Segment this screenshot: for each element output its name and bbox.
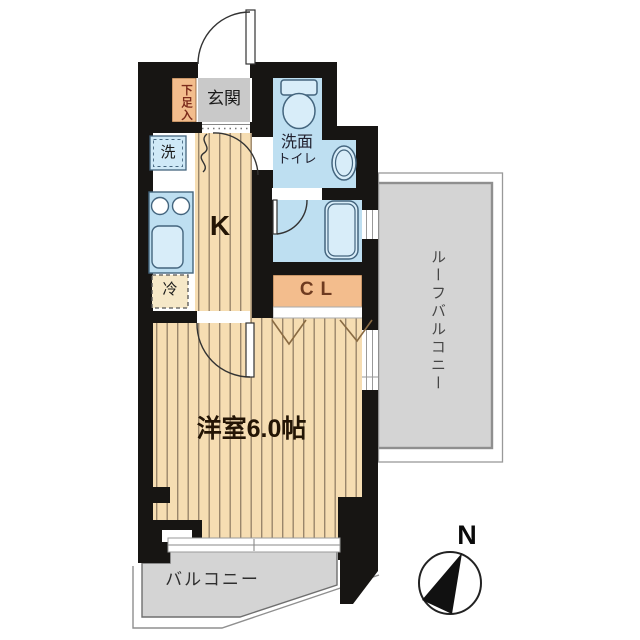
shoe-cabinet-label: 下足入 (173, 80, 192, 126)
washroom-label-line2: トイレ (268, 152, 326, 166)
floor-plan-drawing (0, 0, 640, 640)
balcony-label: バルコニー (160, 571, 265, 590)
closet-label: CL (273, 280, 362, 301)
bathtub-icon (325, 201, 358, 259)
floor-plan: 玄関 下足入 洗 K 冷 洗面 トイレ CL 洋室6.0帖 バルコニー ルーフバ… (0, 0, 640, 640)
western-room-side-window (362, 330, 378, 390)
refrigerator-label: 冷 (152, 282, 188, 299)
sink-icon (152, 226, 183, 268)
balcony-sliding-window (168, 538, 340, 552)
washroom-toilet-label: 洗面 トイレ (268, 134, 326, 166)
kitchen-counter-icon (149, 192, 193, 273)
entrance-door (198, 10, 255, 64)
toilet-icon (281, 80, 317, 129)
entrance-label: 玄関 (198, 90, 250, 109)
kitchen-label: K (198, 211, 242, 242)
wash-basin-icon (332, 146, 356, 180)
burner-icon (152, 198, 169, 215)
roof-balcony-label: ルーフバルコニー (427, 241, 445, 401)
closet-door-track (273, 307, 365, 318)
washroom-label-line1: 洗面 (268, 134, 326, 152)
compass (419, 552, 481, 614)
bathroom-window (362, 210, 378, 239)
compass-north-label: N (452, 521, 482, 551)
western-room-label: 洋室6.0帖 (140, 416, 363, 444)
burner-icon (173, 198, 190, 215)
washing-machine-label: 洗 (150, 145, 186, 162)
